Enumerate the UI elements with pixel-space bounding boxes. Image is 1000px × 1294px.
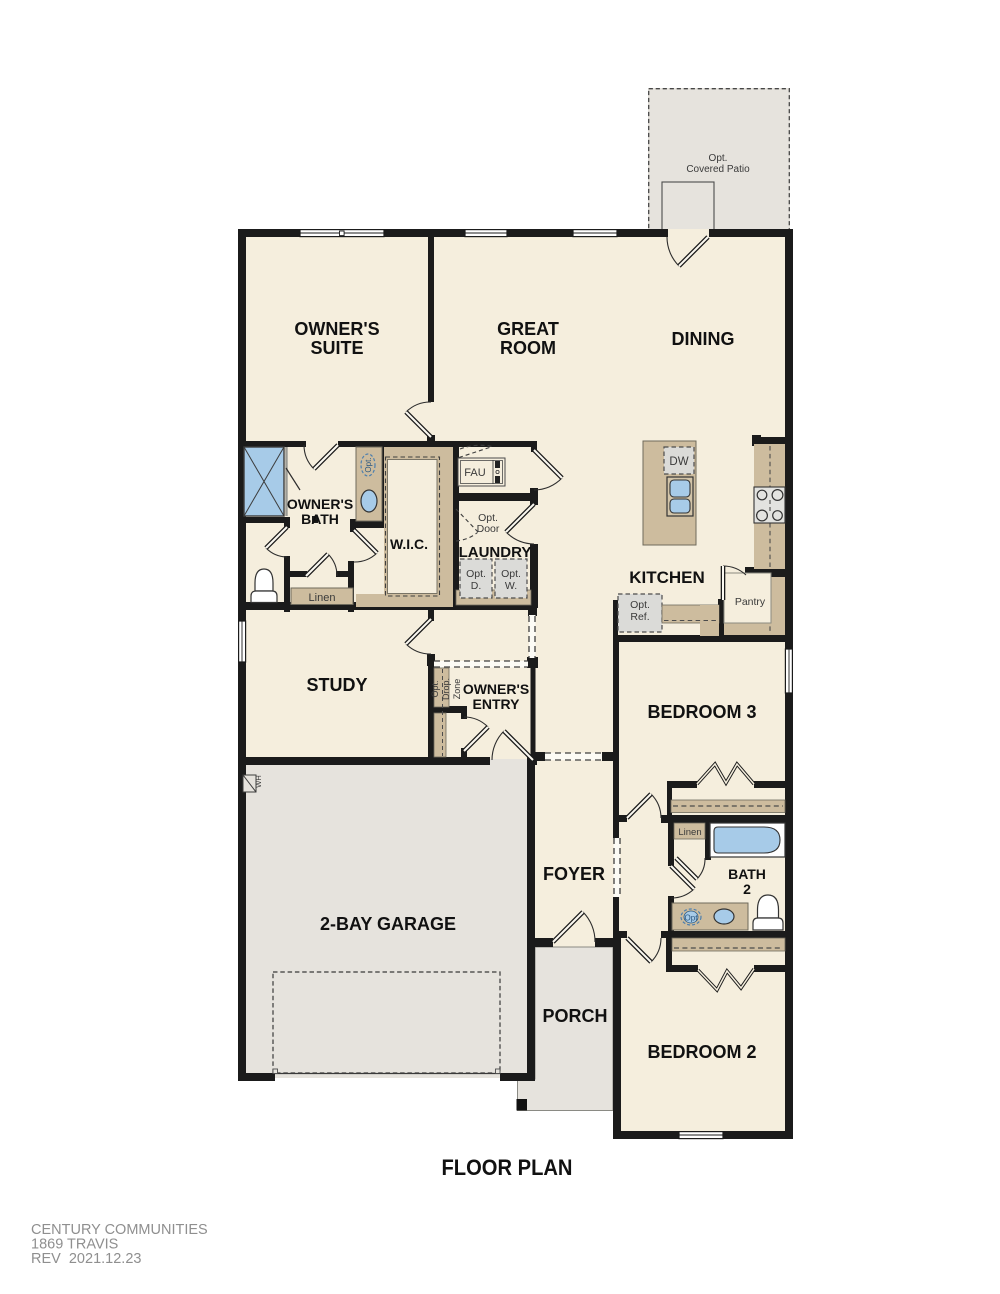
svg-text:Drop.: Drop.: [441, 678, 451, 700]
svg-text:D.: D.: [471, 580, 482, 592]
svg-text:W.: W.: [505, 580, 517, 592]
svg-text:Opt: Opt: [685, 914, 699, 923]
svg-text:Opt.: Opt.: [501, 568, 521, 580]
svg-text:Ref.: Ref.: [630, 611, 649, 623]
svg-text:BEDROOM 2: BEDROOM 2: [647, 1042, 756, 1062]
svg-text:Linen: Linen: [309, 592, 336, 604]
svg-text:FLOOR PLAN: FLOOR PLAN: [442, 1155, 573, 1180]
svg-text:KITCHEN: KITCHEN: [629, 568, 705, 587]
svg-text:Opt.: Opt.: [630, 599, 650, 611]
svg-text:FOYER: FOYER: [543, 864, 605, 884]
svg-text:LAUNDRY: LAUNDRY: [459, 544, 532, 561]
svg-text:GREAT: GREAT: [497, 319, 559, 339]
svg-text:PORCH: PORCH: [542, 1006, 607, 1026]
svg-text:W.I.C.: W.I.C.: [390, 536, 428, 552]
svg-text:Opt.: Opt.: [466, 568, 486, 580]
svg-text:ROOM: ROOM: [500, 338, 556, 358]
svg-text:REV 2021.12.23: REV 2021.12.23: [31, 1251, 141, 1267]
svg-text:Zone: Zone: [452, 679, 462, 700]
svg-text:ENTRY: ENTRY: [473, 696, 521, 712]
svg-text:2-BAY GARAGE: 2-BAY GARAGE: [320, 914, 456, 934]
svg-text:Opt.: Opt.: [709, 153, 728, 164]
svg-text:SUITE: SUITE: [310, 338, 363, 358]
svg-text:Opt.: Opt.: [430, 680, 440, 697]
svg-text:2: 2: [743, 881, 751, 897]
svg-text:BATH: BATH: [301, 511, 339, 527]
svg-text:Door: Door: [477, 523, 500, 535]
svg-text:STUDY: STUDY: [306, 675, 367, 695]
svg-text:Pantry: Pantry: [735, 596, 766, 608]
svg-text:DW: DW: [669, 456, 688, 468]
svg-text:OWNER'S: OWNER'S: [463, 681, 529, 697]
svg-text:Linen: Linen: [678, 827, 701, 838]
svg-text:WH: WH: [254, 775, 263, 788]
svg-text:Covered Patio: Covered Patio: [686, 164, 750, 175]
svg-text:OWNER'S: OWNER'S: [287, 496, 353, 512]
svg-text:BATH: BATH: [728, 866, 766, 882]
svg-text:DINING: DINING: [672, 329, 735, 349]
svg-text:BEDROOM 3: BEDROOM 3: [647, 702, 756, 722]
svg-text:FAU: FAU: [464, 467, 485, 479]
svg-text:OWNER'S: OWNER'S: [294, 319, 379, 339]
svg-text:Opt.: Opt.: [364, 457, 373, 472]
